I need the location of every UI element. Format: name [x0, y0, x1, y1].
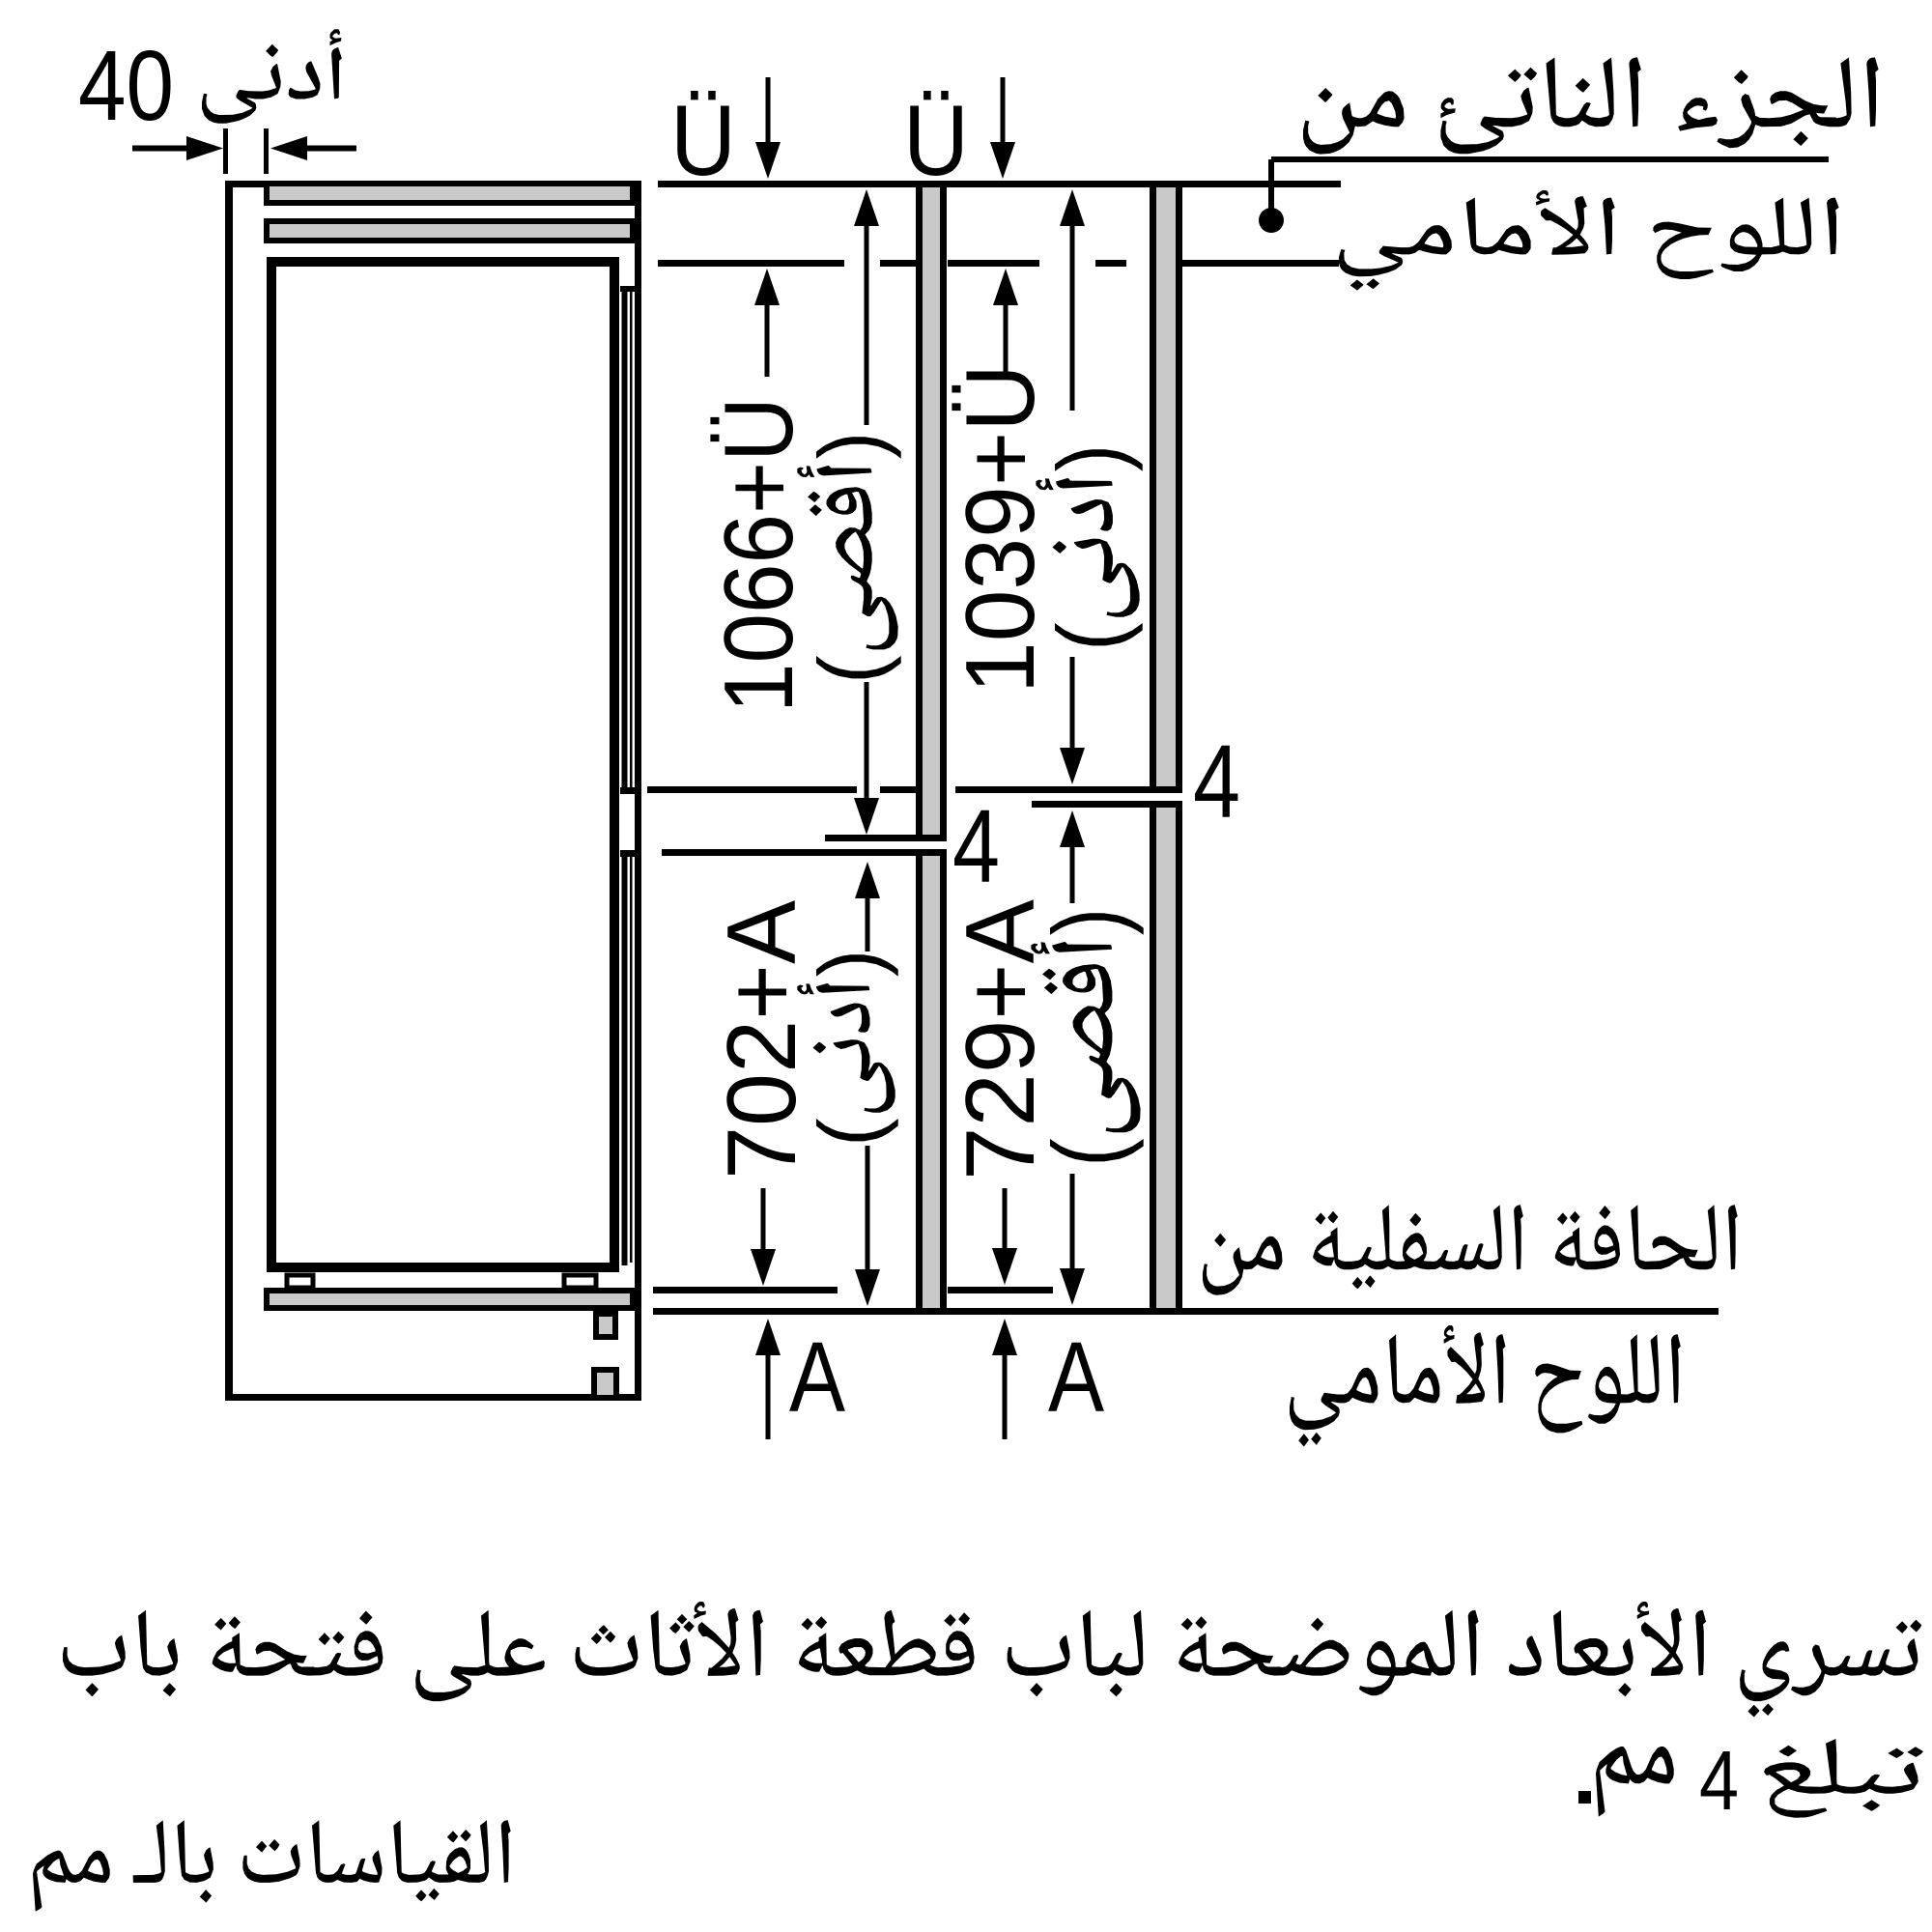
svg-text:1039+Ü: 1039+Ü: [947, 364, 1055, 694]
svg-text:4: 4: [952, 787, 1000, 904]
svg-text:1066+Ü: 1066+Ü: [705, 397, 813, 713]
svg-text:4: 4: [1699, 1734, 1739, 1828]
svg-text:Ü: Ü: [670, 85, 736, 197]
svg-text:40: 40: [78, 30, 174, 141]
svg-text:729+A: 729+A: [947, 898, 1055, 1180]
svg-text:A: A: [1048, 1321, 1104, 1433]
svg-text:A: A: [789, 1321, 845, 1433]
svg-text:Ü: Ü: [903, 85, 969, 197]
svg-text:4: 4: [1193, 723, 1240, 839]
svg-text:702+A: 702+A: [708, 899, 816, 1179]
